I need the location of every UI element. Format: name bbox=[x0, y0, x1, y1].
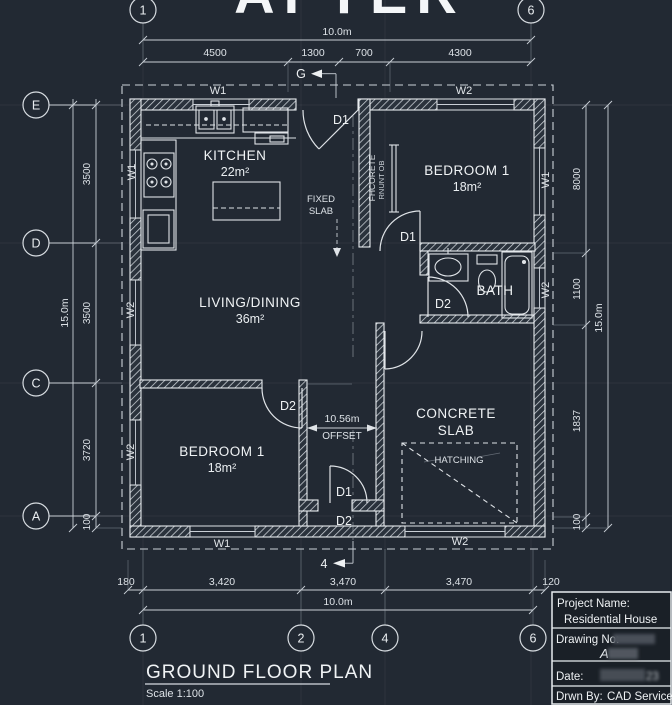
svg-text:OFFSET: OFFSET bbox=[322, 431, 361, 442]
window-left-w1 bbox=[130, 150, 141, 218]
svg-text:4300: 4300 bbox=[448, 47, 472, 59]
drawing-title: GROUND FLOOR PLAN Scale 1:100 bbox=[145, 662, 373, 700]
svg-text:3,470: 3,470 bbox=[330, 576, 356, 588]
svg-text:SLAB: SLAB bbox=[309, 206, 333, 217]
cad-canvas: AFTER bbox=[0, 0, 672, 705]
room-label-bedroom-bl: BEDROOM 1 bbox=[179, 444, 265, 459]
svg-text:D: D bbox=[31, 237, 40, 251]
section-marker-bottom: 4 bbox=[321, 541, 353, 571]
window-top-w2 bbox=[437, 99, 514, 110]
svg-text:W2: W2 bbox=[125, 444, 137, 461]
project-name-label: Project Name: bbox=[557, 598, 630, 610]
down-arrow-icon bbox=[333, 248, 341, 257]
room-label-bath: BATH bbox=[476, 283, 513, 298]
svg-text:C: C bbox=[31, 377, 40, 391]
svg-text:W2: W2 bbox=[125, 302, 137, 319]
section-marker-top: G bbox=[296, 67, 336, 98]
drawing-no-label: Drawing No: bbox=[556, 634, 619, 646]
svg-text:D2: D2 bbox=[280, 399, 296, 413]
date-value: 23 bbox=[646, 671, 659, 683]
bubble-top-6: 6 bbox=[518, 0, 544, 23]
svg-text:W1: W1 bbox=[540, 172, 552, 189]
svg-text:D1: D1 bbox=[336, 485, 352, 499]
project-name-value: Residential House bbox=[564, 614, 657, 626]
svg-text:180: 180 bbox=[117, 576, 135, 588]
offset-dim: 10.56m OFFSET bbox=[307, 413, 377, 442]
window-bottom-w1 bbox=[190, 526, 255, 537]
room-area-living: 36m² bbox=[236, 312, 264, 326]
room-label-bedroom-tr: BEDROOM 1 bbox=[424, 163, 510, 178]
drawn-by-label: Drwn By: bbox=[556, 691, 603, 703]
concrete-door bbox=[385, 331, 422, 369]
plan-title: GROUND FLOOR PLAN bbox=[146, 662, 373, 683]
svg-text:W1: W1 bbox=[214, 538, 231, 550]
svg-text:1100: 1100 bbox=[572, 278, 583, 300]
smudge-blob bbox=[608, 648, 638, 659]
left-arrow-icon bbox=[311, 70, 322, 79]
left-arrow-icon bbox=[307, 425, 317, 432]
svg-text:8000: 8000 bbox=[572, 167, 583, 190]
svg-text:6: 6 bbox=[530, 632, 537, 646]
room-area-kitchen: 22m² bbox=[221, 165, 249, 179]
drawn-by-value: CAD Service bbox=[607, 691, 672, 703]
room-area-bedroom-bl: 18m² bbox=[208, 461, 236, 475]
svg-text:4: 4 bbox=[321, 557, 328, 571]
left-arrow-icon bbox=[333, 559, 345, 568]
closet-note-line2: RNUNT OB bbox=[377, 160, 386, 199]
svg-text:W1: W1 bbox=[210, 85, 227, 97]
closet-note-line1: FHCORETE bbox=[367, 154, 377, 201]
svg-text:10.56m: 10.56m bbox=[324, 413, 359, 425]
drawing-no-value: A bbox=[599, 646, 609, 661]
svg-text:D1: D1 bbox=[333, 113, 349, 127]
bath-sink-icon bbox=[429, 248, 468, 281]
grid-bubbles: 1 6 E D C A 1 2 4 6 bbox=[23, 0, 546, 651]
kitchen-sink-icon bbox=[196, 101, 234, 133]
svg-text:W2: W2 bbox=[540, 282, 552, 299]
svg-text:1837: 1837 bbox=[572, 409, 583, 432]
closet-strip bbox=[389, 145, 399, 212]
kitchen-fixtures bbox=[141, 101, 296, 250]
svg-text:D2: D2 bbox=[435, 297, 451, 311]
svg-text:A: A bbox=[32, 510, 41, 524]
page-title: AFTER bbox=[234, 0, 466, 25]
dim-top-total: 10.0m bbox=[322, 26, 351, 38]
svg-text:3,470: 3,470 bbox=[446, 576, 472, 588]
svg-text:FIXED: FIXED bbox=[307, 194, 335, 205]
smudge-blob bbox=[600, 669, 645, 681]
svg-text:6: 6 bbox=[528, 4, 535, 18]
svg-text:3500: 3500 bbox=[82, 301, 93, 324]
svg-text:W2: W2 bbox=[452, 536, 469, 548]
bubble-left-e: E bbox=[23, 92, 49, 118]
svg-text:W2: W2 bbox=[456, 85, 473, 97]
floor-plan-drawing: AFTER bbox=[0, 0, 672, 705]
kitchen-island bbox=[213, 182, 280, 220]
room-label-living: LIVING/DINING bbox=[199, 295, 301, 310]
fixed-slab-note: FIXED SLAB bbox=[307, 194, 341, 257]
bubble-bottom-2: 2 bbox=[288, 625, 314, 651]
svg-text:D2: D2 bbox=[336, 514, 352, 528]
svg-text:3,420: 3,420 bbox=[209, 576, 235, 588]
bubble-bottom-4: 4 bbox=[372, 625, 398, 651]
svg-text:E: E bbox=[32, 99, 40, 113]
date-label: Date: bbox=[556, 671, 584, 683]
dim-bottom-total: 10.0m bbox=[323, 596, 352, 608]
room-labels: KITCHEN 22m² BEDROOM 1 18m² LIVING/DININ… bbox=[179, 148, 513, 475]
bubble-bottom-1: 1 bbox=[130, 625, 156, 651]
entry-door bbox=[303, 110, 358, 149]
svg-text:1: 1 bbox=[140, 632, 147, 646]
plan-scale: Scale 1:100 bbox=[146, 688, 204, 700]
room-label-concrete-1: CONCRETE bbox=[416, 406, 496, 421]
svg-text:4500: 4500 bbox=[203, 47, 227, 59]
svg-text:W1: W1 bbox=[126, 164, 138, 181]
bubble-left-a: A bbox=[23, 503, 49, 529]
stove-icon bbox=[144, 153, 174, 197]
bubble-bottom-6: 6 bbox=[520, 625, 546, 651]
svg-text:G: G bbox=[296, 67, 306, 81]
room-area-bedroom-tr: 18m² bbox=[453, 180, 481, 194]
bubble-top-1: 1 bbox=[130, 0, 156, 23]
svg-text:2: 2 bbox=[298, 632, 305, 646]
title-block: Project Name: Residential House Drawing … bbox=[552, 592, 672, 704]
smudge-blob bbox=[613, 634, 655, 644]
dim-right-total: 15.0m bbox=[593, 303, 605, 332]
window-top-w1 bbox=[193, 99, 249, 110]
room-label-concrete-2: SLAB bbox=[438, 423, 475, 438]
svg-text:4: 4 bbox=[382, 632, 389, 646]
svg-text:3720: 3720 bbox=[82, 438, 93, 461]
svg-text:700: 700 bbox=[355, 47, 373, 59]
svg-text:1300: 1300 bbox=[301, 47, 325, 59]
svg-text:3500: 3500 bbox=[82, 162, 93, 185]
svg-text:D1: D1 bbox=[400, 230, 416, 244]
room-label-kitchen: KITCHEN bbox=[204, 148, 267, 163]
dim-left-total: 15.0m bbox=[59, 298, 71, 327]
bubble-left-c: C bbox=[23, 370, 49, 396]
bubble-left-d: D bbox=[23, 230, 49, 256]
svg-text:1: 1 bbox=[140, 4, 147, 18]
hatching-label: HATCHING bbox=[435, 455, 484, 466]
